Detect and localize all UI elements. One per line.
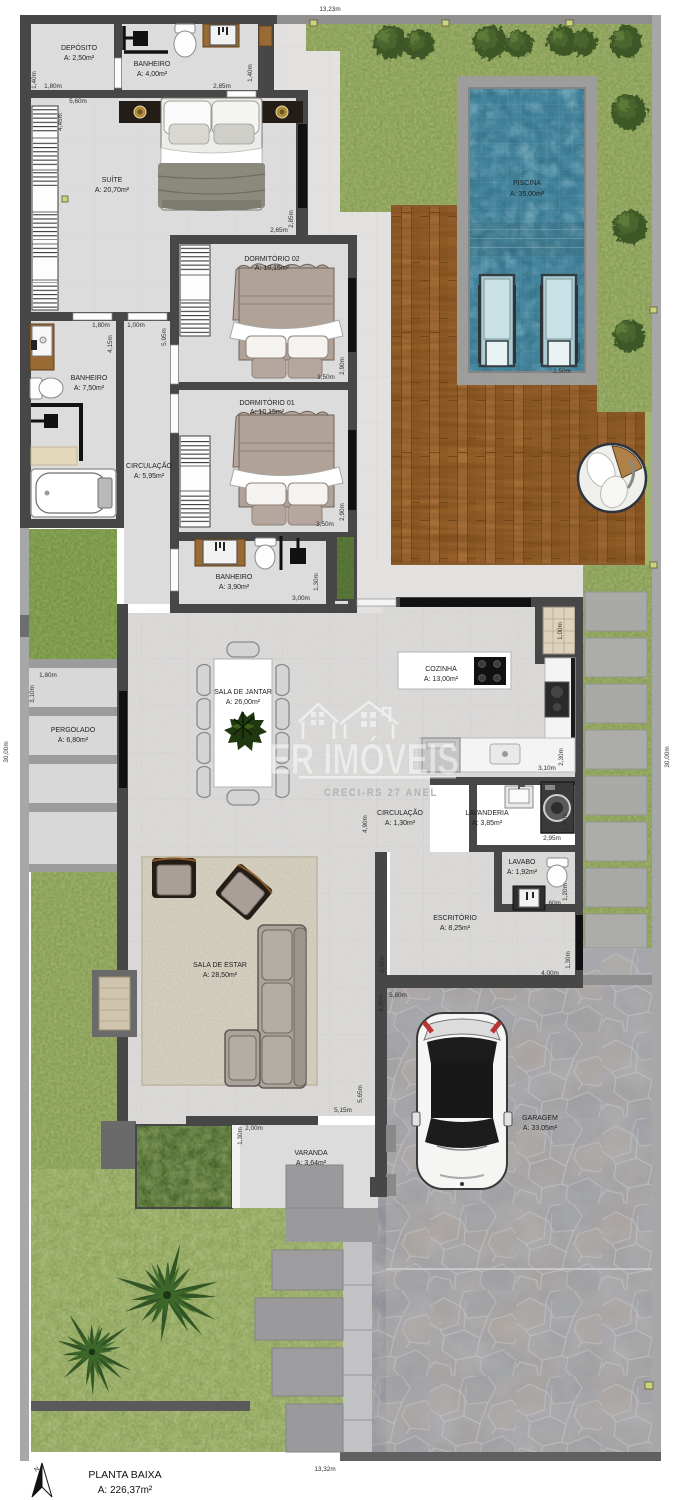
svg-text:PERGOLADO: PERGOLADO [51,727,96,734]
svg-text:SALA DE JANTAR: SALA DE JANTAR [214,689,272,696]
svg-text:5,95m: 5,95m [161,328,168,346]
svg-text:BANHEIRO: BANHEIRO [216,574,253,581]
svg-text:5,15m: 5,15m [334,1107,352,1114]
svg-text:1,30m: 1,30m [237,1127,244,1145]
svg-text:2,00m: 2,00m [245,1125,263,1132]
svg-text:SALA DE ESTAR: SALA DE ESTAR [193,962,247,969]
svg-text:A: 7,50m²: A: 7,50m² [74,385,105,392]
svg-text:A: 3,85m²: A: 3,85m² [472,820,503,827]
svg-text:CRECI-RS 27 ANEL: CRECI-RS 27 ANEL [324,787,438,799]
svg-text:1,30m: 1,30m [313,573,320,591]
svg-text:A: 1,92m²: A: 1,92m² [507,869,538,876]
svg-text:4,00m: 4,00m [541,970,559,977]
svg-text:A: 10,15m²: A: 10,15m² [250,409,285,416]
svg-text:BANHEIRO: BANHEIRO [134,61,171,68]
svg-text:2,30m: 2,30m [558,748,565,766]
svg-text:1,20m: 1,20m [562,883,569,901]
svg-text:DEPÓSITO: DEPÓSITO [61,43,98,52]
svg-text:LAVABO: LAVABO [509,859,537,866]
svg-text:2,50m: 2,50m [553,368,571,375]
svg-text:A: 28,50m²: A: 28,50m² [203,972,238,979]
svg-text:3,10m: 3,10m [29,685,36,703]
svg-text:2,65m: 2,65m [379,955,386,973]
svg-text:4,45m: 4,45m [57,113,64,131]
svg-text:4,80m: 4,80m [378,994,385,1012]
svg-text:4,90m: 4,90m [362,815,369,833]
svg-text:3,50m: 3,50m [317,374,335,381]
svg-text:DORMITÓRIO 02: DORMITÓRIO 02 [244,254,299,263]
svg-text:1,40m: 1,40m [31,71,38,89]
svg-text:A: 6,80m²: A: 6,80m² [58,737,89,744]
svg-text:A: 26,00m²: A: 26,00m² [226,699,261,706]
svg-text:COZINHA: COZINHA [425,666,457,673]
svg-text:CIRCULAÇÃO: CIRCULAÇÃO [377,808,423,817]
svg-text:2,65m: 2,65m [270,227,288,234]
svg-text:A: 226,37m²: A: 226,37m² [98,1485,153,1496]
svg-text:GARAGEM: GARAGEM [522,1115,558,1122]
svg-text:2,90m: 2,90m [339,503,346,521]
svg-text:13,32m: 13,32m [314,1466,335,1473]
svg-text:PISCINA: PISCINA [513,180,541,187]
svg-text:30,00m: 30,00m [664,746,671,767]
svg-text:A: 33,05m²: A: 33,05m² [523,1125,558,1132]
svg-text:1,00m: 1,00m [557,622,564,640]
svg-text:30,00m: 30,00m [3,741,10,762]
svg-text:1,80m: 1,80m [44,83,62,90]
svg-text:A: 13,00m²: A: 13,00m² [424,676,459,683]
svg-text:CIRCULAÇÃO: CIRCULAÇÃO [126,461,172,470]
svg-text:1,30m: 1,30m [562,813,569,831]
svg-text:2,90m: 2,90m [339,357,346,375]
svg-text:PLANTA BAIXA: PLANTA BAIXA [88,1469,161,1481]
svg-text:1,80m: 1,80m [92,322,110,329]
svg-text:A: 3,64m²: A: 3,64m² [296,1160,327,1167]
svg-text:6,00m: 6,00m [575,343,582,361]
svg-text:3,10m: 3,10m [538,765,556,772]
svg-text:1,40m: 1,40m [247,64,254,82]
svg-text:2,85m: 2,85m [213,83,231,90]
svg-text:2,95m: 2,95m [543,835,561,842]
svg-text:1,00m: 1,00m [127,322,145,329]
svg-text:A: 10,15m²: A: 10,15m² [255,265,290,272]
svg-text:5,80m: 5,80m [389,992,407,999]
svg-text:2,85m: 2,85m [288,210,295,228]
svg-text:BANHEIRO: BANHEIRO [71,375,108,382]
svg-text:13,23m: 13,23m [319,6,340,13]
svg-text:A: 5,95m²: A: 5,95m² [134,473,165,480]
svg-text:DORMITÓRIO 01: DORMITÓRIO 01 [239,398,294,407]
svg-text:1,80m: 1,80m [39,672,57,679]
svg-text:VARANDA: VARANDA [294,1150,328,1157]
svg-text:A: 1,30m²: A: 1,30m² [385,820,416,827]
svg-text:5,65m: 5,65m [357,1085,364,1103]
svg-text:A: 2,50m²: A: 2,50m² [64,55,95,62]
svg-text:4,15m: 4,15m [107,335,114,353]
svg-text:A: 20,70m²: A: 20,70m² [95,187,130,194]
svg-text:3,00m: 3,00m [292,595,310,602]
svg-text:A: 4,00m²: A: 4,00m² [137,71,168,78]
svg-text:1,30m: 1,30m [565,951,572,969]
svg-text:SUÍTE: SUÍTE [102,175,123,184]
svg-text:3,50m: 3,50m [316,521,334,528]
svg-text:ESCRITÓRIO: ESCRITÓRIO [433,913,477,922]
svg-text:1,60m: 1,60m [543,900,561,907]
svg-text:A: 8,25m²: A: 8,25m² [440,925,471,932]
svg-text:A: 35,00m²: A: 35,00m² [510,191,545,198]
svg-text:5,60m: 5,60m [69,98,87,105]
svg-text:LAVANDERIA: LAVANDERIA [465,810,509,817]
svg-text:A: 3,90m²: A: 3,90m² [219,584,250,591]
